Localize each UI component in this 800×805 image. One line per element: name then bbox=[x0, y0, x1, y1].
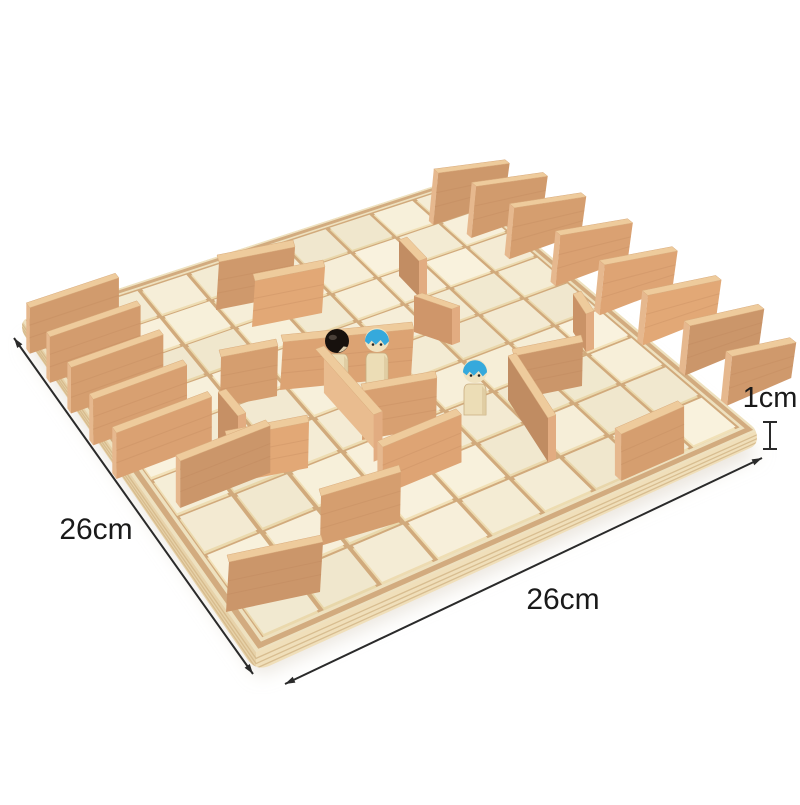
svg-text:1cm: 1cm bbox=[743, 382, 798, 414]
svg-text:26cm: 26cm bbox=[526, 583, 599, 616]
svg-text:26cm: 26cm bbox=[59, 513, 132, 546]
